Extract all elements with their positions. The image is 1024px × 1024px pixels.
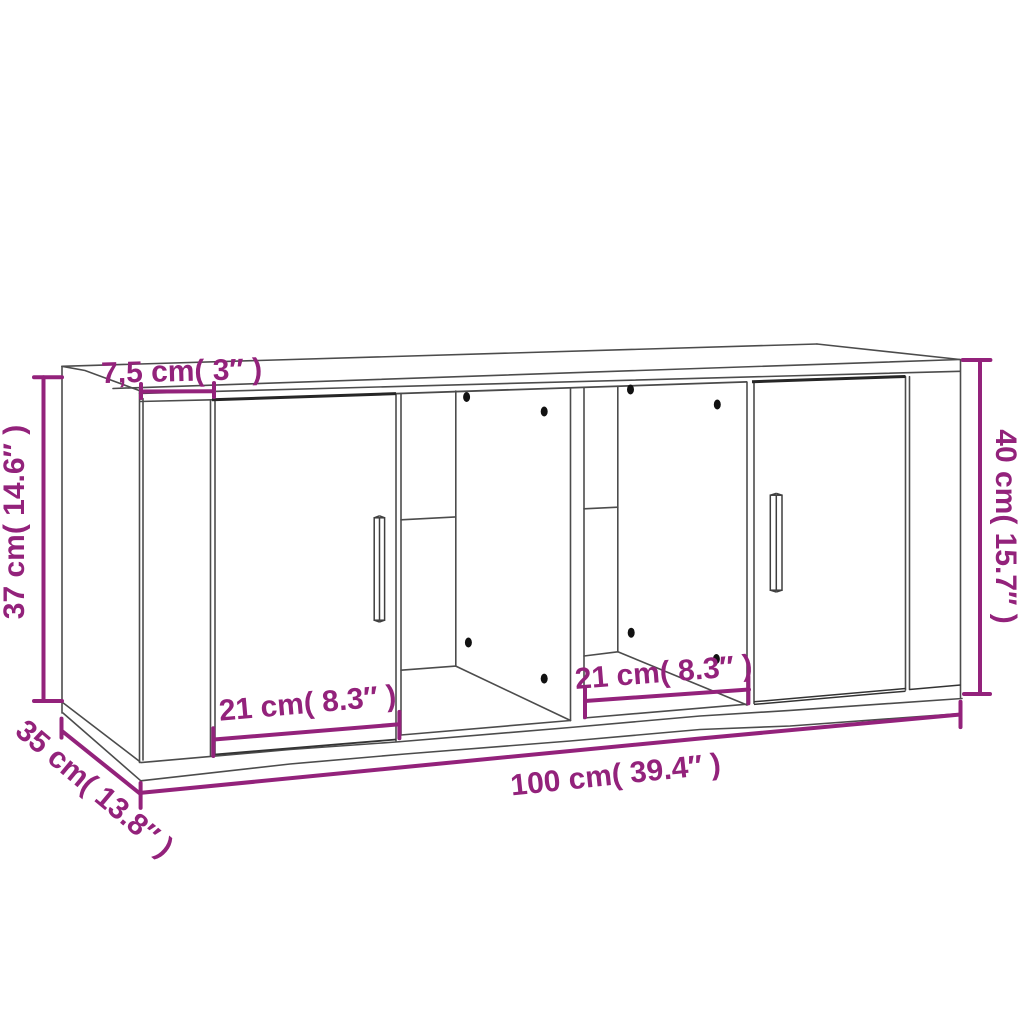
svg-text:37 cm( 14.6″ ): 37 cm( 14.6″ ) [0,425,31,619]
svg-text:7,5 cm( 3″ ): 7,5 cm( 3″ ) [101,353,263,390]
svg-text:40 cm( 15.7″ ): 40 cm( 15.7″ ) [989,429,1022,623]
